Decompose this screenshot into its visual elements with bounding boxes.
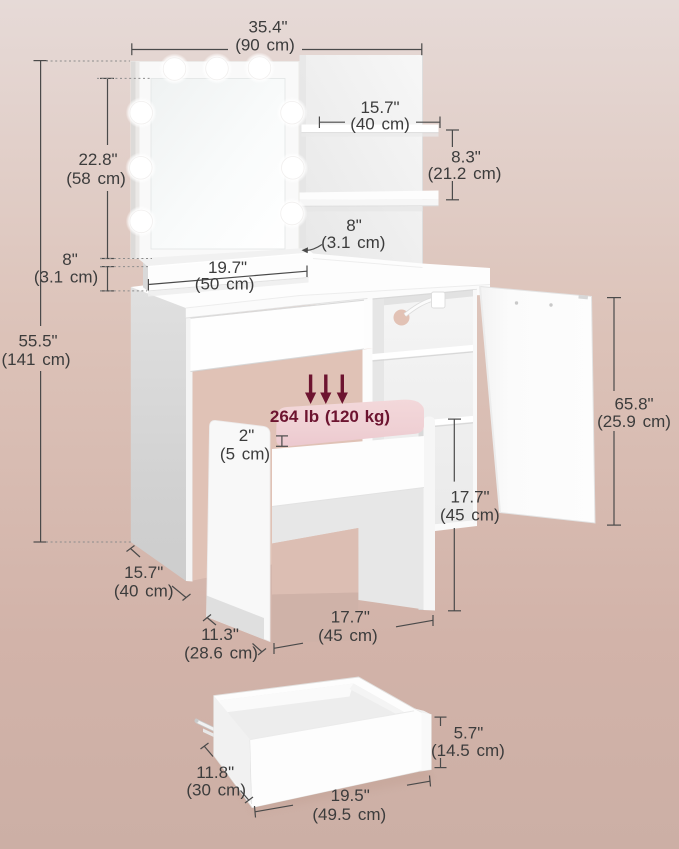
svg-text:264 lb (120 kg): 264 lb (120 kg): [270, 407, 390, 426]
svg-text:(50 cm): (50 cm): [195, 275, 255, 294]
svg-text:17.7": 17.7": [331, 608, 370, 627]
svg-text:11.3": 11.3": [201, 625, 239, 644]
svg-text:65.8": 65.8": [614, 395, 653, 414]
svg-text:8": 8": [62, 250, 78, 269]
svg-text:(141 cm): (141 cm): [1, 350, 70, 369]
svg-text:19.5": 19.5": [331, 786, 370, 805]
svg-text:(5 cm): (5 cm): [220, 445, 270, 464]
svg-text:(45 cm): (45 cm): [440, 505, 500, 524]
svg-text:(30 cm): (30 cm): [186, 780, 246, 799]
svg-text:(14.5 cm): (14.5 cm): [431, 741, 505, 760]
svg-text:(58 cm): (58 cm): [66, 169, 126, 188]
svg-text:(40 cm): (40 cm): [114, 581, 174, 600]
svg-text:(40 cm): (40 cm): [350, 115, 410, 134]
svg-text:(28.6 cm): (28.6 cm): [184, 644, 258, 663]
svg-text:17.7": 17.7": [450, 487, 489, 506]
svg-text:(21.2 cm): (21.2 cm): [428, 164, 502, 183]
svg-text:15.7": 15.7": [124, 563, 163, 582]
svg-text:2": 2": [239, 426, 255, 445]
svg-text:(25.9 cm): (25.9 cm): [597, 412, 671, 431]
svg-text:(45 cm): (45 cm): [318, 626, 378, 645]
svg-text:(49.5 cm): (49.5 cm): [312, 805, 386, 824]
svg-text:(3.1 cm): (3.1 cm): [321, 233, 385, 252]
svg-text:(90 cm): (90 cm): [235, 36, 295, 55]
svg-text:5.7": 5.7": [454, 724, 484, 743]
svg-text:55.5": 55.5": [18, 332, 57, 351]
svg-text:35.4": 35.4": [248, 18, 287, 37]
svg-text:(3.1 cm): (3.1 cm): [34, 268, 98, 287]
svg-text:22.8": 22.8": [78, 150, 117, 169]
svg-text:11.8": 11.8": [196, 763, 234, 782]
